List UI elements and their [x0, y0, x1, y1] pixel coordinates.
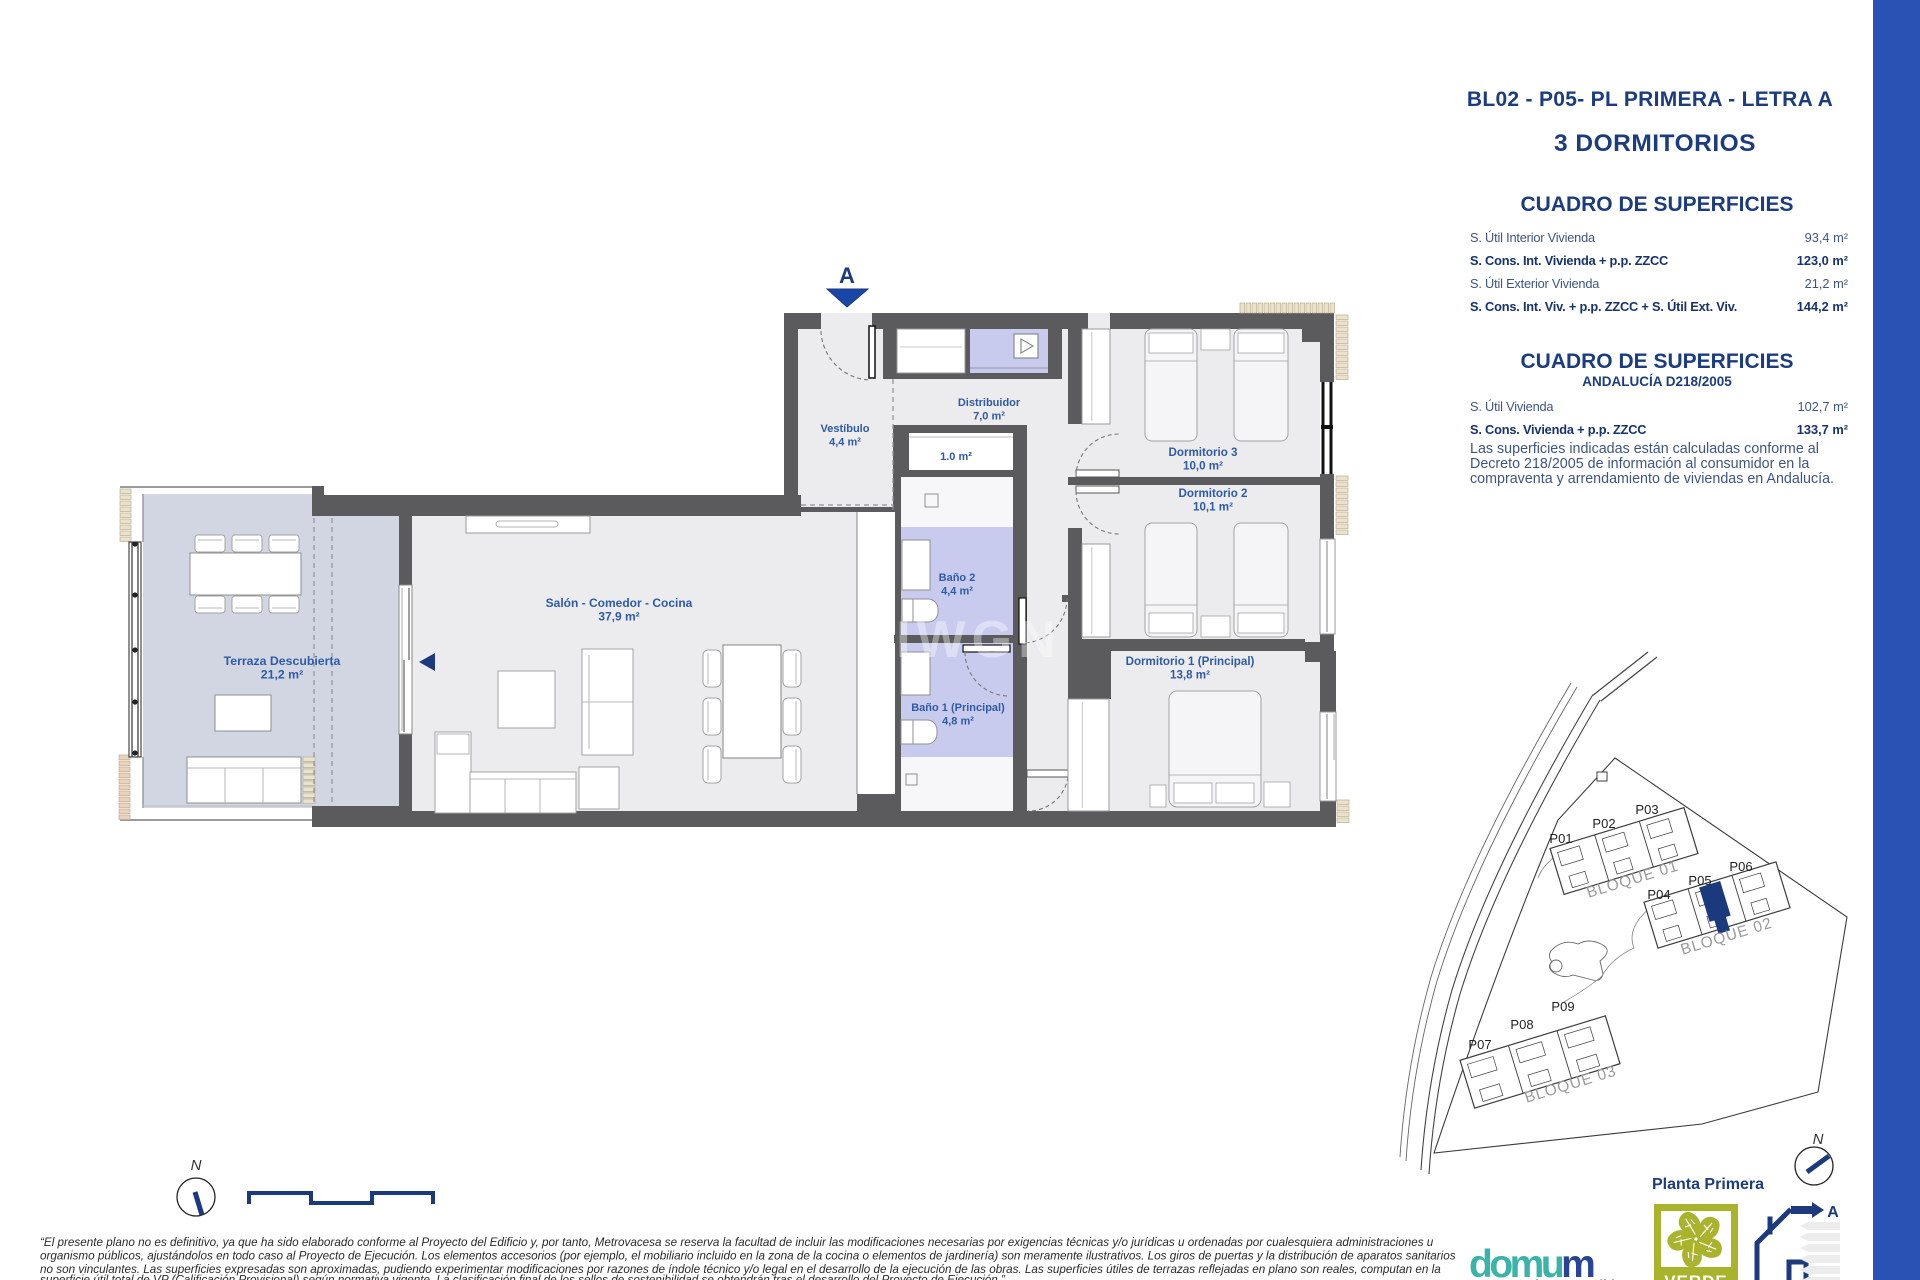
- svg-text:4,4 m²: 4,4 m²: [829, 437, 861, 449]
- svg-text:13,8 m²: 13,8 m²: [1170, 669, 1210, 682]
- svg-text:37,9 m²: 37,9 m²: [598, 610, 639, 624]
- svg-text:21,2 m²: 21,2 m²: [1805, 276, 1849, 291]
- svg-text:Salón - Comedor - Cocina: Salón - Comedor - Cocina: [546, 596, 693, 610]
- svg-text:Decreto 218/2005 de informació: Decreto 218/2005 de información al consu…: [1470, 456, 1809, 472]
- svg-text:Las superficies indicadas está: Las superficies indicadas están calculad…: [1470, 441, 1819, 457]
- svg-text:P07: P07: [1468, 1037, 1491, 1052]
- svg-text:P06: P06: [1729, 859, 1752, 874]
- svg-text:P02: P02: [1592, 816, 1615, 831]
- svg-text:144,2 m²: 144,2 m²: [1797, 299, 1848, 314]
- svg-text:Dormitorio 1 (Principal): Dormitorio 1 (Principal): [1126, 655, 1255, 668]
- svg-text:Dormitorio 3: Dormitorio 3: [1169, 446, 1238, 459]
- svg-text:1.0 m²: 1.0 m²: [940, 451, 972, 463]
- svg-text:Vestíbulo: Vestíbulo: [821, 423, 870, 435]
- svg-text:4,4 m²: 4,4 m²: [941, 586, 973, 598]
- svg-text:Baño 1 (Principal): Baño 1 (Principal): [911, 702, 1005, 714]
- svg-text:123,0 m²: 123,0 m²: [1797, 253, 1848, 268]
- svg-text:ANDALUCÍA D218/2005: ANDALUCÍA D218/2005: [1582, 374, 1732, 389]
- svg-text:S. Cons. Int. Viv. + p.p. ZZCC: S. Cons. Int. Viv. + p.p. ZZCC + S. Útil…: [1470, 299, 1737, 314]
- svg-text:N: N: [191, 1157, 202, 1174]
- svg-text:TIWGN: TIWGN: [858, 611, 1061, 669]
- svg-text:domum: domum: [1469, 1243, 1594, 1280]
- svg-text:10,0 m²: 10,0 m²: [1183, 460, 1223, 473]
- svg-text:N: N: [1813, 1131, 1824, 1148]
- svg-text:P09: P09: [1551, 999, 1574, 1014]
- svg-text:organismo públicos, ajustándol: organismo públicos, ajustándolos en todo…: [40, 1250, 1456, 1263]
- svg-text:10,1 m²: 10,1 m²: [1193, 501, 1233, 514]
- svg-text:S. Útil Exterior Vivienda: S. Útil Exterior Vivienda: [1470, 276, 1600, 291]
- svg-text:superficie útil total de VP (C: superficie útil total de VP (Calificació…: [40, 1274, 1006, 1280]
- svg-text:102,7 m²: 102,7 m²: [1797, 399, 1848, 414]
- svg-text:“El presente plano no es defin: “El presente plano no es definitivo, ya …: [40, 1236, 1434, 1249]
- svg-text:P03: P03: [1635, 802, 1658, 817]
- svg-text:Baño 2: Baño 2: [939, 572, 976, 584]
- svg-text:VERDE: VERDE: [1664, 1272, 1728, 1280]
- svg-text:P08: P08: [1510, 1017, 1533, 1032]
- svg-text:4,8 m²: 4,8 m²: [942, 716, 974, 728]
- svg-text:CUADRO DE SUPERFICIES: CUADRO DE SUPERFICIES: [1520, 350, 1793, 373]
- svg-text:3 DORMITORIOS: 3 DORMITORIOS: [1554, 130, 1756, 157]
- svg-text:Distribuidor: Distribuidor: [958, 397, 1021, 409]
- svg-text:CUADRO DE SUPERFICIES: CUADRO DE SUPERFICIES: [1520, 193, 1793, 216]
- svg-text:7,0 m²: 7,0 m²: [973, 411, 1005, 423]
- svg-text:S. Cons. Int. Vivienda + p.p.: S. Cons. Int. Vivienda + p.p. ZZCC: [1470, 253, 1668, 268]
- svg-text:Terraza Descubierta: Terraza Descubierta: [224, 654, 341, 668]
- svg-text:21,2 m²: 21,2 m²: [261, 668, 303, 682]
- svg-text:Planta Primera: Planta Primera: [1652, 1176, 1764, 1193]
- svg-text:133,7 m²: 133,7 m²: [1797, 422, 1848, 437]
- svg-text:P05: P05: [1688, 873, 1711, 888]
- svg-text:Dormitorio 2: Dormitorio 2: [1179, 487, 1248, 500]
- svg-text:S. Útil Interior Vivienda: S. Útil Interior Vivienda: [1470, 230, 1596, 245]
- svg-text:A: A: [1827, 1204, 1839, 1221]
- svg-text:compraventa y arrendamiento de: compraventa y arrendamiento de viviendas…: [1470, 471, 1834, 487]
- svg-text:P04: P04: [1647, 887, 1670, 902]
- svg-text:93,4 m²: 93,4 m²: [1805, 230, 1849, 245]
- svg-text:P01: P01: [1549, 831, 1572, 846]
- svg-text:S. Útil Vivienda: S. Útil Vivienda: [1470, 399, 1554, 414]
- svg-text:A: A: [839, 263, 855, 288]
- svg-text:S. Cons. Vivienda + p.p. ZZCC: S. Cons. Vivienda + p.p. ZZCC: [1470, 422, 1646, 437]
- svg-text:BL02 - P05- PL PRIMERA - LETRA: BL02 - P05- PL PRIMERA - LETRA A: [1467, 88, 1833, 111]
